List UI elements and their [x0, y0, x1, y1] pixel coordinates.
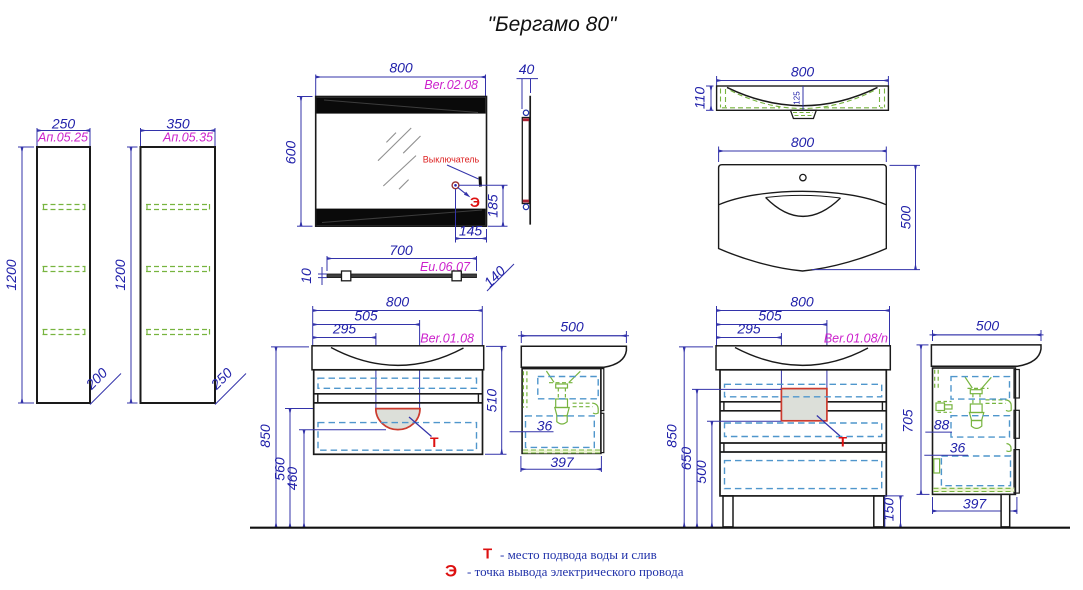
svg-text:185: 185: [485, 194, 501, 218]
svg-text:500: 500: [898, 206, 914, 230]
svg-text:295: 295: [736, 321, 761, 337]
svg-text:36: 36: [537, 418, 553, 434]
svg-text:"Бергамо 80": "Бергамо 80": [487, 13, 618, 36]
svg-text:Ber.01.08/n: Ber.01.08/n: [824, 332, 888, 346]
svg-text:800: 800: [790, 294, 814, 310]
svg-text:Т: Т: [430, 434, 439, 450]
svg-text:- точка вывода электрического: - точка вывода электрического провода: [467, 564, 684, 579]
svg-text:36: 36: [950, 440, 966, 456]
svg-text:800: 800: [386, 294, 410, 310]
svg-text:397: 397: [963, 496, 988, 512]
svg-text:40: 40: [519, 61, 535, 77]
svg-text:460: 460: [284, 467, 300, 491]
svg-text:350: 350: [166, 116, 190, 132]
svg-text:Выключатель: Выключатель: [423, 155, 480, 165]
svg-text:Ап.05.35: Ап.05.35: [162, 131, 213, 145]
svg-text:800: 800: [389, 60, 413, 76]
svg-text:140: 140: [481, 262, 509, 290]
svg-text:125: 125: [793, 91, 802, 105]
svg-text:Э: Э: [445, 562, 457, 581]
svg-text:150: 150: [881, 498, 897, 522]
svg-text:145: 145: [459, 223, 483, 239]
svg-text:- место подвода воды и слив: - место подвода воды и слив: [500, 547, 657, 562]
svg-text:Т: Т: [839, 434, 848, 450]
svg-text:705: 705: [900, 409, 916, 433]
svg-text:110: 110: [692, 87, 708, 110]
svg-text:Э: Э: [470, 194, 480, 210]
svg-text:700: 700: [389, 242, 413, 258]
svg-text:800: 800: [791, 64, 815, 80]
svg-text:295: 295: [332, 321, 357, 337]
svg-text:Т: Т: [483, 546, 492, 563]
svg-text:1200: 1200: [3, 259, 19, 290]
svg-text:505: 505: [758, 308, 782, 324]
svg-text:Ап.05.25: Ап.05.25: [37, 131, 88, 145]
svg-text:500: 500: [693, 460, 709, 484]
svg-text:510: 510: [484, 389, 500, 413]
svg-text:650: 650: [678, 447, 694, 471]
svg-text:850: 850: [257, 424, 273, 448]
svg-text:500: 500: [560, 319, 584, 335]
svg-text:500: 500: [976, 318, 1000, 334]
svg-text:88: 88: [934, 417, 950, 433]
svg-text:250: 250: [51, 116, 76, 132]
svg-text:850: 850: [664, 424, 680, 448]
svg-text:Eu.06.07: Eu.06.07: [420, 260, 471, 274]
svg-text:600: 600: [283, 141, 299, 165]
svg-text:800: 800: [791, 134, 815, 150]
svg-text:397: 397: [550, 454, 575, 470]
svg-text:1200: 1200: [112, 259, 128, 290]
svg-text:10: 10: [298, 268, 314, 284]
svg-text:Ber.02.08: Ber.02.08: [424, 78, 478, 92]
svg-text:505: 505: [354, 308, 378, 324]
svg-text:Ber.01.08: Ber.01.08: [420, 332, 474, 346]
